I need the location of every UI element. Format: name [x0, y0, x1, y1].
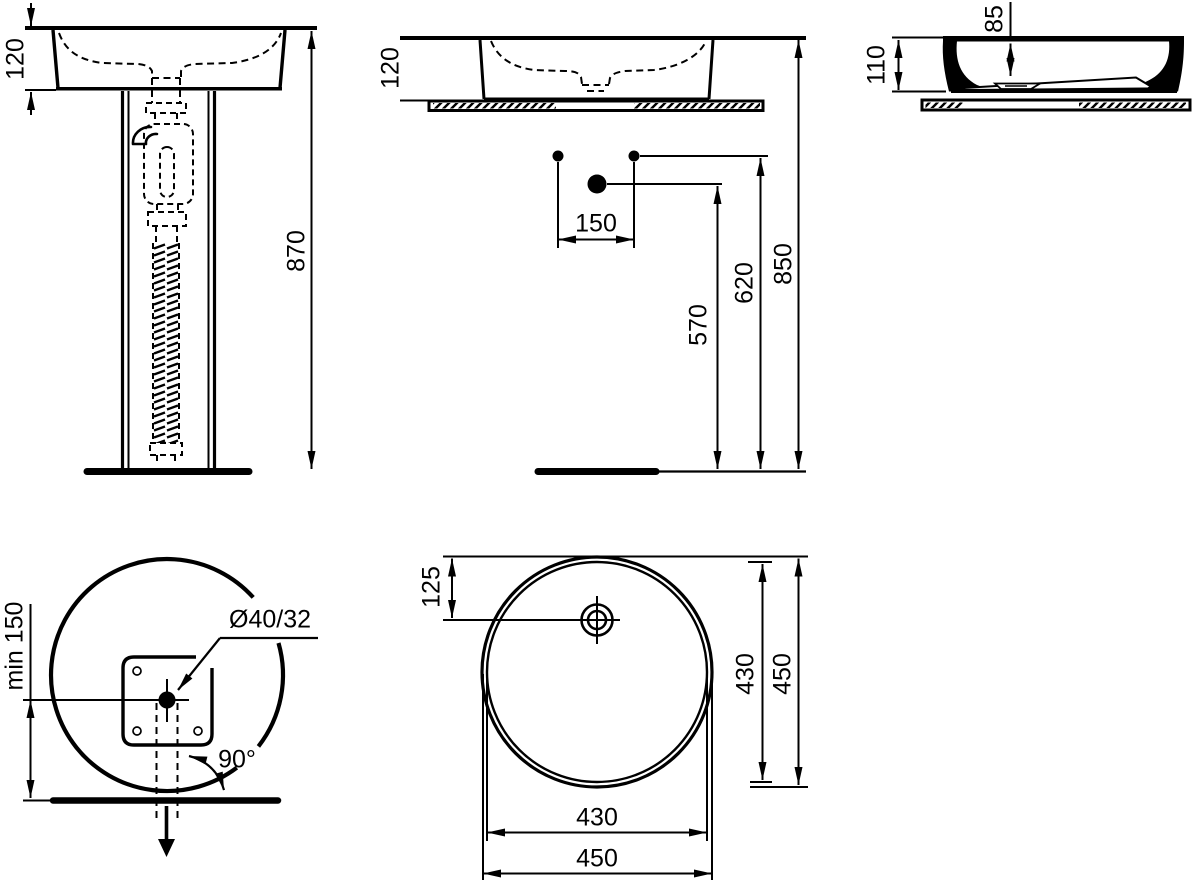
front-pedestal-view: [25, 3, 317, 472]
center-cross-lines: [23, 679, 189, 722]
bowl-bottom-edge: [963, 78, 1151, 91]
tap-hole-right: [629, 151, 640, 162]
technical-drawing-sheet: 120 870 120 150 570 620 850 85 110 min 1…: [0, 0, 1200, 880]
drain-direction-arrow-head: [158, 839, 175, 857]
dim-label-overall-height: 870: [285, 230, 310, 272]
basin-outline: [480, 40, 713, 99]
dim-label-drain-outlet-height: 570: [687, 304, 712, 346]
basin-rim-line: [25, 26, 317, 30]
dim-label-basin-height-side: 110: [865, 45, 890, 85]
slab-hatch-left: [926, 103, 963, 109]
side-section-view: [892, 2, 1190, 110]
dim-label-outer-diameter-vertical: 450: [771, 653, 796, 695]
basin-inner-circle: [487, 562, 707, 782]
dim-label-tap-hole-spacing: 150: [575, 212, 617, 237]
dim-label-basin-height-countertop: 120: [379, 47, 404, 89]
fixing-hole: [133, 667, 141, 675]
basin-wall-left: [943, 41, 988, 92]
dim-label-inner-diameter-vertical: 430: [734, 653, 759, 695]
fixing-hole: [133, 727, 141, 735]
dim-label-min-wall-distance: min 150: [3, 602, 28, 691]
dim-label-inner-diameter-horizontal: 430: [576, 806, 618, 831]
top-basin-view: [443, 557, 808, 880]
basin-bottom-line: [56, 87, 282, 91]
drawing-linework: [0, 0, 1200, 880]
dim-label-rim-height: 850: [772, 243, 797, 285]
dim-label-swivel-angle: 90°: [218, 748, 256, 773]
basin-outer-circle: [482, 557, 712, 787]
slab-hatch-right: [634, 103, 760, 109]
tap-hole-left: [553, 151, 564, 162]
drain-center-lines: [443, 596, 620, 644]
dim-label-bowl-depth: 85: [983, 5, 1008, 33]
dim-label-waste-pipe-diameter: Ø40/32: [229, 608, 311, 633]
hose-corrugation: [153, 243, 179, 443]
bowl-hidden-contour: [59, 33, 281, 91]
dim-label-drain-offset: 125: [420, 566, 445, 608]
basin-outline-circle-segment: [258, 643, 283, 746]
bowl-hidden-contour: [491, 41, 706, 91]
slab-hatch-left: [433, 103, 556, 109]
fixing-hole: [194, 727, 202, 735]
dim-label-water-supply-height: 620: [733, 262, 758, 304]
basin-rim-line: [400, 36, 806, 40]
dim-label-outer-diameter-horizontal: 450: [576, 847, 618, 872]
basin-rim-section: [943, 36, 1184, 42]
dim-label-basin-height-pedestal: 120: [4, 38, 29, 80]
drain-point: [588, 175, 607, 194]
slab-hatch-right: [1079, 103, 1186, 109]
front-countertop-view: [400, 36, 806, 472]
top-pedestal-view: [23, 559, 318, 857]
